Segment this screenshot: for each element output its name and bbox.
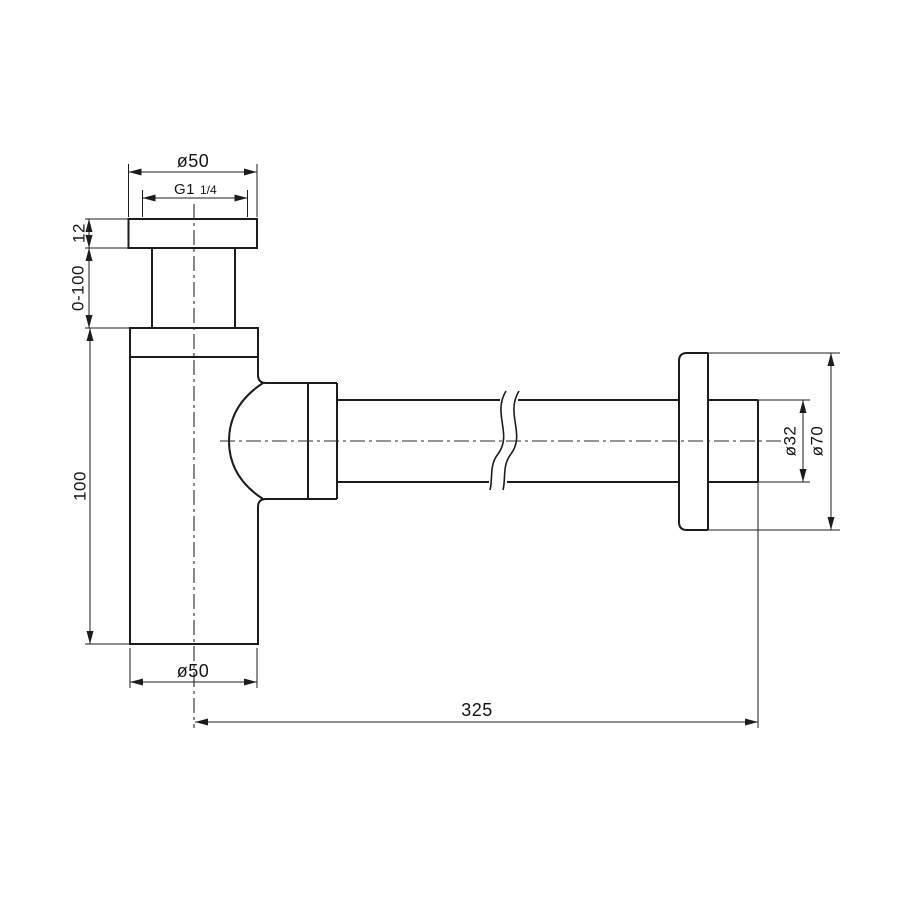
dimension-arrow xyxy=(244,679,257,686)
dimension-arrow xyxy=(244,169,257,176)
dim-label-thread-fraction: 1/4 xyxy=(200,183,217,197)
dim-left-chain: 12 0-100 100 xyxy=(68,219,152,644)
dimension-arrow xyxy=(745,719,758,726)
dim-label-body-height: 100 xyxy=(70,471,89,501)
dimension-arrow xyxy=(195,719,208,726)
dim-label-body-diameter: ø50 xyxy=(177,661,210,681)
drawing-canvas: ø50 G1 1/4 12 0-100 100 ø50 xyxy=(0,0,900,900)
dimension-arrow xyxy=(87,328,94,341)
dim-label-inlet-diameter: ø50 xyxy=(177,151,210,171)
dimension-arrow xyxy=(235,195,248,202)
dimension-arrow xyxy=(800,400,807,413)
dim-label-adjustable-range: 0-100 xyxy=(68,265,87,311)
dim-label-thread-size: G1 xyxy=(174,181,195,198)
dim-wall-distance: 325 xyxy=(195,482,758,728)
dim-label-nut-height: 12 xyxy=(69,223,88,243)
dim-label-escutcheon-diameter: ø70 xyxy=(807,426,826,457)
dimension-arrow xyxy=(86,248,93,261)
dim-thread: G1 1/4 xyxy=(143,181,248,217)
dimension-arrow xyxy=(800,469,807,482)
dimension-arrow xyxy=(828,353,835,366)
dimension-arrow xyxy=(129,169,142,176)
inlet-nut xyxy=(129,219,258,248)
dim-label-pipe-diameter: ø32 xyxy=(780,426,799,457)
bottle-trap-technical-drawing: ø50 G1 1/4 12 0-100 100 ø50 xyxy=(0,0,900,900)
dimension-arrow xyxy=(87,631,94,644)
dim-pipe-diameter: ø32 xyxy=(758,400,810,482)
dim-label-wall-distance: 325 xyxy=(461,700,493,720)
dimension-arrow xyxy=(86,315,93,328)
dimension-arrow xyxy=(828,517,835,530)
centerlines xyxy=(194,204,785,728)
dimension-arrow xyxy=(143,195,156,202)
dimension-arrow xyxy=(130,679,143,686)
